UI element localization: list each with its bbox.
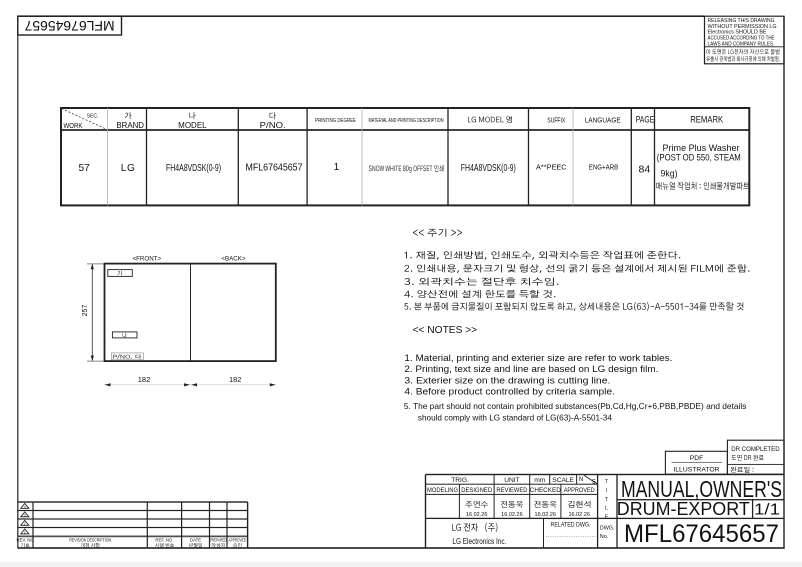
svg-text:Prime Plus Washer: Prime Plus Washer [663,143,740,153]
svg-text:No.: No. [600,534,608,540]
svg-text:9kg): 9kg) [661,168,678,178]
svg-text:BRAND: BRAND [116,121,144,130]
svg-text:SUFFIX: SUFFIX [547,117,565,124]
svg-text:RELATED DWG.: RELATED DWG. [551,521,591,528]
svg-text:4: 4 [24,505,26,509]
svg-text:182: 182 [138,375,151,384]
svg-text:DR COMPLETED: DR COMPLETED [731,446,780,453]
svg-text:REF. NO.: REF. NO. [155,537,173,542]
svg-text:3. Exterier size on the drawin: 3. Exterier size on the drawing is cutti… [404,375,610,385]
svg-text:LANGUAGE: LANGUAGE [585,117,621,124]
svg-text:<< NOTES >>: << NOTES >> [413,324,478,336]
svg-text:5. The part should not contain: 5. The part should not contain prohibite… [404,401,747,411]
svg-text:E: E [605,515,609,521]
svg-text:DESIGNED: DESIGNED [461,487,492,494]
svg-text:LG: LG [121,163,136,174]
svg-text:57: 57 [79,163,91,174]
svg-text:MFL67645657: MFL67645657 [246,163,303,174]
svg-text:PRINTING DEGREE: PRINTING DEGREE [315,118,356,124]
svg-text:CHECKED: CHECKED [530,487,561,494]
svg-text:L: L [605,506,608,512]
svg-text:ILLUSTRATOR: ILLUSTRATOR [673,466,719,473]
svg-text:PREPARED: PREPARED [210,537,227,542]
svg-text:2. Printing, text size and lin: 2. Printing, text size and line are base… [404,364,658,374]
svg-text:1: 1 [333,161,339,173]
svg-text:182: 182 [229,375,242,384]
svg-text:1/1: 1/1 [754,502,780,519]
svg-text:P/NO.: P/NO. [260,121,286,130]
svg-text:APPROVED: APPROVED [229,537,247,542]
svg-text:MANUAL,OWNER'S: MANUAL,OWNER'S [621,476,782,502]
svg-text:A**PEEC: A**PEEC [536,163,567,172]
svg-text:DRUM-EXPORT: DRUM-EXPORT [617,499,750,519]
svg-text:SEC.: SEC. [87,113,99,119]
svg-text:1: 1 [24,531,26,535]
svg-text:16.02.26: 16.02.26 [535,512,557,518]
svg-text:APPROVED: APPROVED [564,487,595,494]
svg-text:MFL67645657: MFL67645657 [624,520,779,548]
svg-text:N: N [579,476,583,483]
svg-text:FH4A8VDSK(0-9): FH4A8VDSK(0-9) [461,163,516,174]
svg-text:LG Electronics Inc.: LG Electronics Inc. [452,537,506,546]
svg-text:MODELING: MODELING [427,487,458,494]
svg-text:3: 3 [24,514,26,518]
svg-text:257: 257 [82,305,89,317]
svg-text:REVIEWED: REVIEWED [496,487,527,494]
svg-text:DATE: DATE [190,537,201,542]
svg-text:<BACK>: <BACK> [221,255,245,262]
svg-text:MFL67645657: MFL67645657 [24,18,114,34]
svg-text:SCALE: SCALE [552,477,574,484]
svg-text:4. Before product controlled b: 4. Before product controlled by criteria… [404,387,614,397]
svg-text:1. Material, printing and exte: 1. Material, printing and exterier size … [404,353,672,363]
svg-text:PAGE: PAGE [636,114,655,124]
svg-text:REV. NO: REV. NO [17,537,35,542]
svg-text:should comply with LG standard: should comply with LG standard of LG(63)… [418,412,612,422]
svg-text:LAWS AND COMPANY RULES.: LAWS AND COMPANY RULES. [708,41,775,47]
svg-text:16.02.26: 16.02.26 [568,512,590,518]
svg-text:UNIT: UNIT [504,477,519,484]
svg-text:ENG+ARB: ENG+ARB [589,163,619,172]
svg-text:mm: mm [534,477,545,484]
svg-text:REMARK: REMARK [690,114,723,124]
svg-text:16.02.26: 16.02.26 [466,512,488,518]
svg-text:16.02.26: 16.02.26 [501,512,523,518]
svg-text:PDF: PDF [690,455,704,462]
svg-text:TRIG.: TRIG. [451,477,469,484]
svg-text:MATERIAL AND PRINTING DESCRIPT: MATERIAL AND PRINTING DESCRIPTION [369,118,444,124]
svg-text:2: 2 [24,522,26,526]
svg-text:<FRONT>: <FRONT> [133,255,162,262]
svg-text:I: I [606,488,607,494]
svg-text:FH4A8VDSK(0-9): FH4A8VDSK(0-9) [166,163,221,174]
svg-text:84: 84 [639,164,651,176]
svg-text:DWG.: DWG. [600,526,615,532]
svg-text:MODEL: MODEL [178,121,207,130]
svg-text:(POST OD 550, STEAM: (POST OD 550, STEAM [657,153,741,163]
svg-text:WORK: WORK [64,123,83,130]
svg-text:REVISION DESCRIPTION: REVISION DESCRIPTION [69,537,111,542]
svg-text:S: S [592,479,596,486]
